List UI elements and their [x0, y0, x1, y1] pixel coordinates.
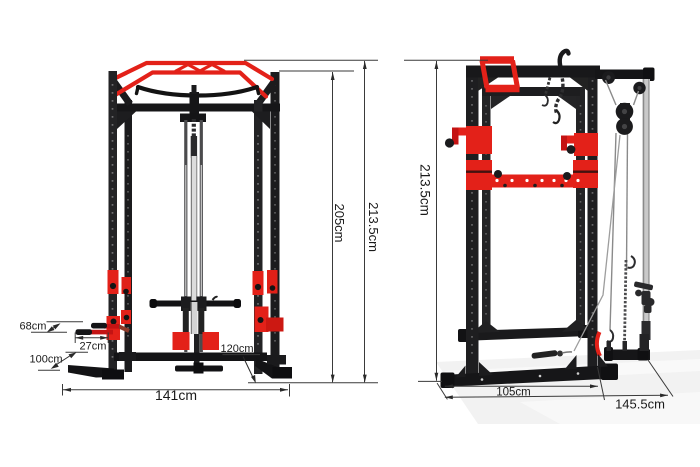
svg-text:27cm: 27cm — [80, 340, 107, 352]
svg-text:213.5cm: 213.5cm — [366, 202, 381, 252]
svg-text:213.5cm: 213.5cm — [418, 164, 433, 216]
svg-text:145.5cm: 145.5cm — [615, 397, 665, 412]
svg-text:105cm: 105cm — [496, 387, 531, 399]
svg-text:120cm: 120cm — [221, 343, 254, 355]
svg-text:141cm: 141cm — [155, 387, 197, 403]
svg-text:205cm: 205cm — [332, 203, 347, 242]
svg-text:68cm: 68cm — [20, 321, 47, 333]
